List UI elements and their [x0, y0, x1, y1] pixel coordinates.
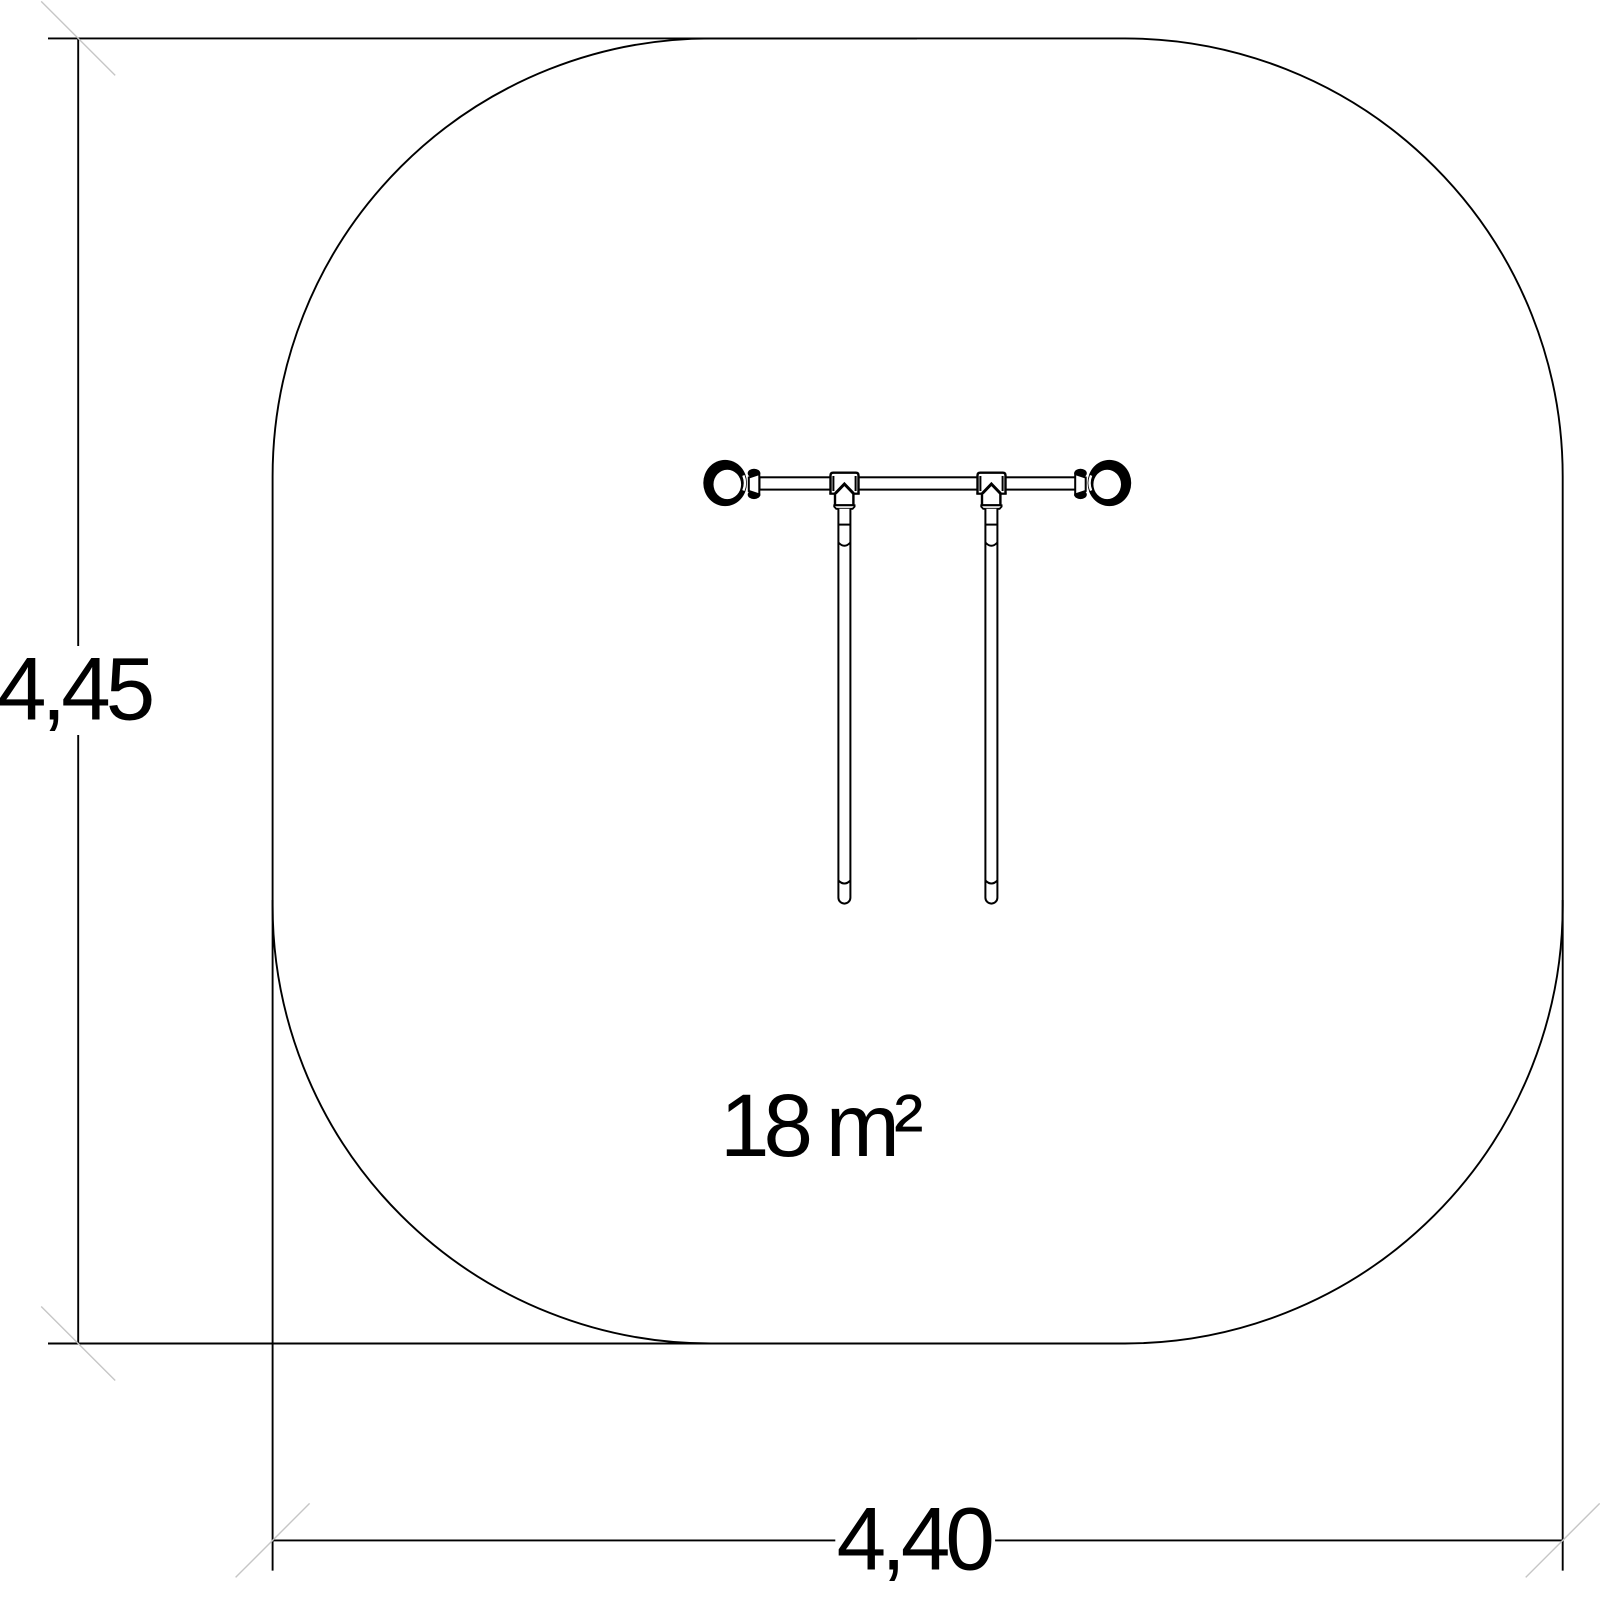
svg-text:18 m²: 18 m² [720, 1075, 922, 1175]
svg-text:4,45: 4,45 [0, 638, 152, 738]
svg-text:4,40: 4,40 [837, 1489, 993, 1589]
